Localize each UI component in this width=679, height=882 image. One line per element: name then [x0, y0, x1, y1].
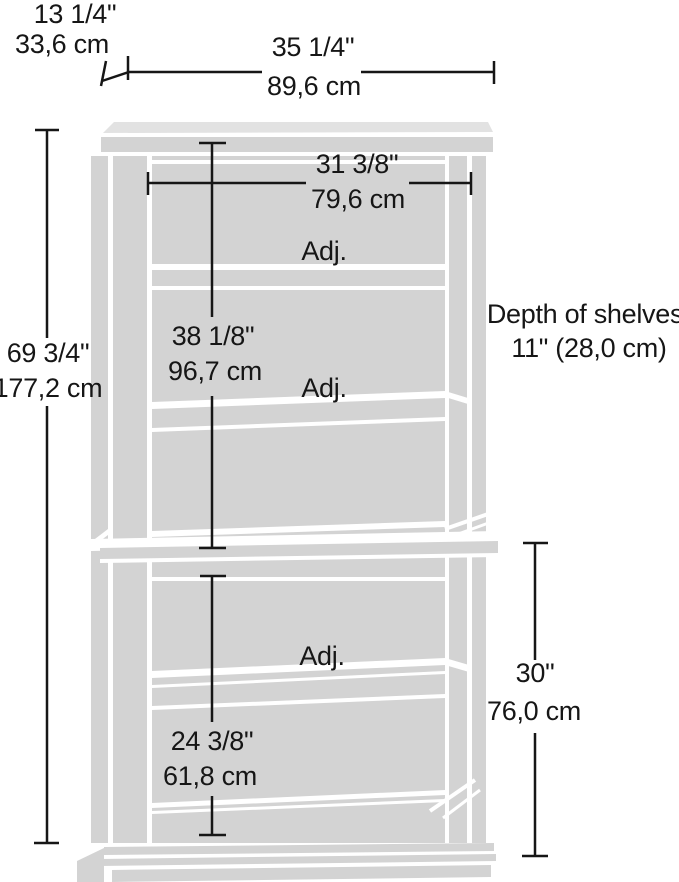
dim-label-lower-interior-cm: 61,8 cm — [163, 762, 257, 790]
dim-label-overall-width-cm: 89,6 cm — [267, 72, 361, 100]
dim-label-upper-section-inches: 38 1/8" — [172, 322, 255, 350]
dim-label-upper-section-cm: 96,7 cm — [168, 357, 262, 385]
adjustable-shelf-label-1: Adj. — [301, 237, 346, 265]
bookcase-line-drawing — [0, 0, 679, 882]
cabinet-body — [113, 156, 486, 843]
dim-label-lower-section-inches: 30" — [516, 659, 555, 687]
dim-label-top-depth-inches: 13 1/4" — [34, 0, 117, 28]
side-panel-left — [91, 156, 108, 843]
dim-label-overall-width-inches: 35 1/4" — [272, 33, 355, 61]
dim-label-overall-height-inches: 69 3/4" — [7, 339, 90, 367]
dim-line-top-depth — [101, 56, 129, 86]
crown-molding — [101, 122, 493, 152]
bookcase-dimension-diagram: 13 1/4" 33,6 cm 35 1/4" 89,6 cm 31 3/8" … — [0, 0, 679, 882]
dim-label-lower-interior-inches: 24 3/8" — [171, 727, 254, 755]
dim-label-top-depth-cm: 33,6 cm — [15, 30, 109, 58]
dim-label-interior-width-inches: 31 3/8" — [316, 150, 399, 178]
base-molding — [77, 843, 496, 882]
dim-label-interior-width-cm: 79,6 cm — [311, 185, 405, 213]
depth-note-line-1: Depth of shelves — [487, 300, 679, 328]
dim-line-overall-height — [34, 130, 59, 843]
dim-label-lower-section-cm: 76,0 cm — [487, 697, 581, 725]
adjustable-shelf-label-3: Adj. — [299, 642, 344, 670]
dim-label-overall-height-cm: 177,2 cm — [0, 374, 102, 402]
adjustable-shelf-label-2: Adj. — [301, 374, 346, 402]
depth-note-line-2: 11" (28,0 cm) — [511, 334, 666, 362]
